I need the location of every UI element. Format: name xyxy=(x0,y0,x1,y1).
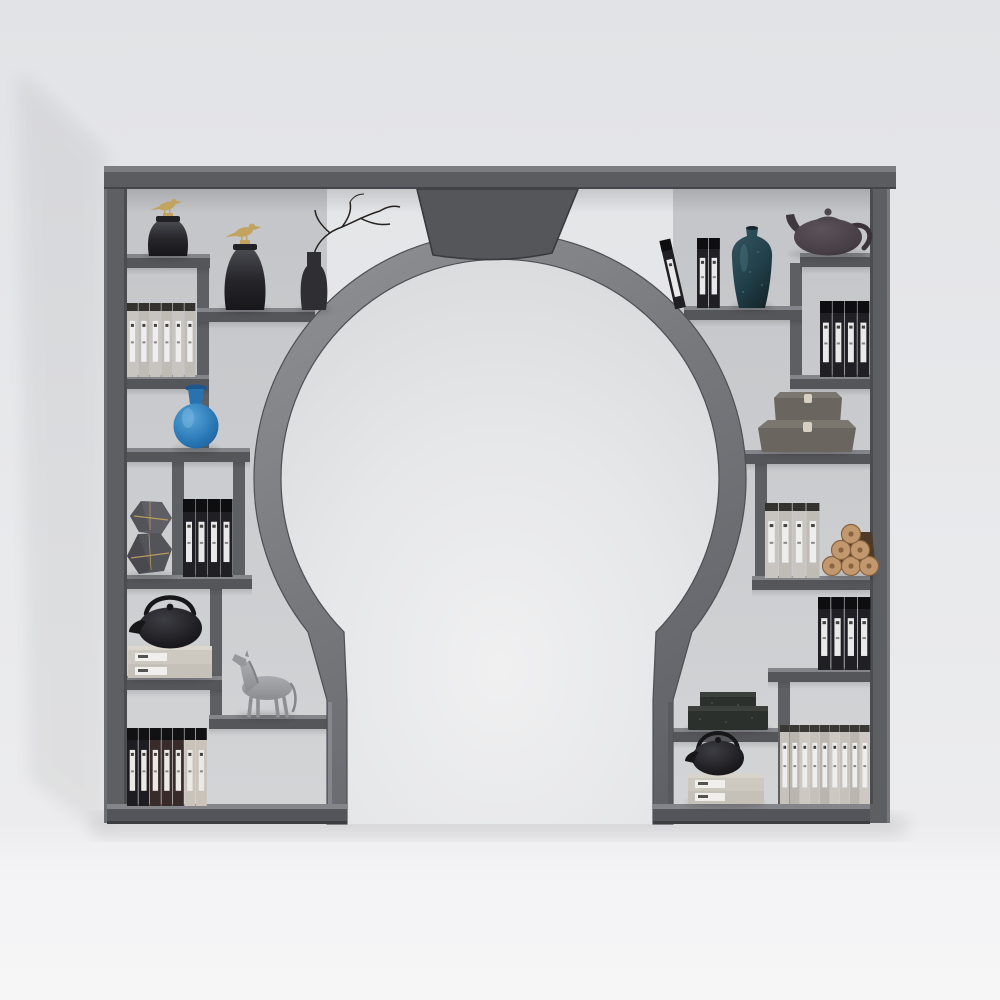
book-black-folios-top-right-upright-2 xyxy=(709,238,720,308)
book-label-mark-top xyxy=(177,753,180,756)
book-classic-books-right-mid-4 xyxy=(806,503,819,578)
book-black-folios-mid-left-1 xyxy=(183,499,195,577)
teapot-left-knob xyxy=(167,604,174,611)
shadow-hex xyxy=(125,573,175,580)
stone-slab-stack xyxy=(688,692,768,730)
book-classic-books-bottom-right-9 xyxy=(860,725,870,804)
book-cap xyxy=(139,303,150,311)
book-classic-books-right-mid-3 xyxy=(793,503,806,578)
book-mixed-books-bottom-left-3 xyxy=(150,728,161,806)
book-black-folios-right-lower-4 xyxy=(858,597,871,670)
book-cap xyxy=(196,728,207,740)
shelf-j-front xyxy=(790,379,870,389)
book-label-mark-mid xyxy=(177,770,180,772)
left-wall-edge-light xyxy=(104,186,107,823)
book-label-mark-mid xyxy=(142,770,145,772)
book-label-mark-top xyxy=(836,621,840,624)
book-label-mark-mid xyxy=(849,637,853,639)
base-right-shadowline xyxy=(653,821,870,824)
book-black-folios-right-upper-2 xyxy=(833,301,845,377)
book-cap xyxy=(779,503,792,511)
book-classic-books-bottom-right-8 xyxy=(850,725,860,804)
book-black-folios-right-upper-3 xyxy=(845,301,857,377)
book-label-mark-top xyxy=(797,524,801,527)
book-cap xyxy=(833,301,845,313)
book-label-mark-top xyxy=(701,261,704,264)
base-left-shadowline xyxy=(107,821,347,824)
stack-left-mark1 xyxy=(138,655,148,658)
shelf-l-shadow xyxy=(752,590,870,597)
log3-core xyxy=(866,563,871,568)
stack-left-mark2 xyxy=(138,669,148,672)
right-foot-shade xyxy=(668,702,672,810)
book-label-mark-mid xyxy=(863,765,866,767)
book-cap xyxy=(820,725,830,732)
book-label-mark-mid xyxy=(701,276,704,278)
book-label-mark-mid xyxy=(783,542,787,544)
book-label-mark-top xyxy=(225,525,228,528)
book-label-mark-mid xyxy=(843,765,846,767)
stack-right-mark1 xyxy=(698,782,708,785)
slab-dot4 xyxy=(725,721,727,723)
book-cap xyxy=(845,301,857,313)
book-label-mark-top xyxy=(770,524,774,527)
bird-large-leg1 xyxy=(241,236,243,241)
book-label-mark-mid xyxy=(188,341,191,343)
book-label-mark-mid xyxy=(824,342,827,344)
shelf-d-shadow xyxy=(123,462,250,469)
bird-small-head xyxy=(171,199,177,205)
book-mixed-books-bottom-left-1 xyxy=(127,728,138,806)
book-cap xyxy=(697,238,708,249)
book-classic-books-bottom-right-6 xyxy=(830,725,840,804)
shelf-m xyxy=(768,668,870,689)
log5-core xyxy=(857,547,862,552)
book-label-mark-top xyxy=(131,753,134,756)
book-cap xyxy=(831,597,844,609)
book-cap xyxy=(127,728,138,740)
floor xyxy=(0,826,1000,1000)
left-wall-inner-shade xyxy=(124,189,127,804)
speckle1 xyxy=(757,251,759,253)
book-black-folios-mid-left-4 xyxy=(221,499,233,577)
book-label-mark-top xyxy=(849,326,852,329)
divider-left-2 xyxy=(172,452,184,579)
shelf-k-shadow xyxy=(744,464,870,471)
right-wall-inner-shade xyxy=(870,189,873,804)
book-label-mark-mid xyxy=(188,770,191,772)
book-label-mark-mid xyxy=(813,765,816,767)
book-classic-books-bottom-right-7 xyxy=(840,725,850,804)
book-label-mark-top xyxy=(154,324,157,327)
book-label-mark-top xyxy=(849,621,853,624)
book-cap xyxy=(162,303,173,311)
book-label-mark-top xyxy=(783,524,787,527)
book-label-mark-top xyxy=(824,326,827,329)
book-label-mark-top xyxy=(154,753,157,756)
book-label-mark-top xyxy=(165,324,168,327)
book-label-mark-mid xyxy=(803,765,806,767)
horse-leg3 xyxy=(276,699,278,716)
book-label xyxy=(796,521,803,563)
book-label-mark-mid xyxy=(131,341,134,343)
speckle4 xyxy=(742,291,744,293)
shelf-a-front xyxy=(123,258,210,268)
book-label-mark-top xyxy=(853,746,856,749)
moon-gate-shelf-render xyxy=(0,0,1000,1000)
jar-large-lid xyxy=(233,244,257,250)
book-label-mark-mid xyxy=(793,765,796,767)
book-mixed-books-bottom-left-6 xyxy=(185,728,196,806)
book-label-mark-mid xyxy=(212,542,215,544)
book-label-mark-top xyxy=(200,753,203,756)
book-label-mark-mid xyxy=(187,542,190,544)
book-classic-books-top-left-3 xyxy=(150,303,161,377)
book-label-mark-mid xyxy=(200,542,203,544)
shelf-b-shadow xyxy=(197,322,315,329)
stack-right-mark2 xyxy=(698,795,708,798)
shelf-g-shadow xyxy=(209,729,332,736)
blue-vase-highlight xyxy=(182,408,194,428)
base-right-top xyxy=(653,804,870,809)
book-cap xyxy=(818,597,831,609)
book-label-mark-top xyxy=(811,524,815,527)
book-label-mark-mid xyxy=(200,770,203,772)
book-label-mark-top xyxy=(187,525,190,528)
book-cap xyxy=(765,503,778,511)
shelf-unit xyxy=(104,166,896,824)
book-label-mark-mid xyxy=(823,637,827,639)
book-classic-books-top-left-6 xyxy=(185,303,196,377)
book-cap xyxy=(196,499,208,512)
book-cap xyxy=(208,499,220,512)
book-label-mark-mid xyxy=(154,770,157,772)
book-label-mark-mid xyxy=(853,765,856,767)
book-mixed-books-bottom-left-2 xyxy=(139,728,150,806)
shelf-d-front xyxy=(123,452,250,462)
book-label-mark-mid xyxy=(836,637,840,639)
wall-cast-shadow xyxy=(18,70,106,836)
base-right xyxy=(653,804,870,824)
log2-core xyxy=(848,563,853,568)
book-label-mark-top xyxy=(863,746,866,749)
log4-core xyxy=(838,547,843,552)
shelf-a-shadow xyxy=(123,268,210,275)
book-classic-books-top-left-2 xyxy=(139,303,150,377)
book-label-mark-top xyxy=(188,324,191,327)
book-cap xyxy=(840,725,850,732)
book-cap xyxy=(858,301,870,313)
book-label-mark-top xyxy=(793,746,796,749)
log1-core xyxy=(829,563,834,568)
book-label-mark-top xyxy=(142,324,145,327)
shelf-e-shadow xyxy=(123,589,252,596)
slab-dot2 xyxy=(737,704,739,706)
slab-dot1 xyxy=(711,702,713,704)
shelf-f-front xyxy=(123,680,222,690)
shelf-f-shadow xyxy=(123,690,222,697)
book-label-mark-top xyxy=(823,746,826,749)
book-label-mark-top xyxy=(142,753,145,756)
clay-teapot-knob xyxy=(824,208,831,215)
book-label-mark-mid xyxy=(833,765,836,767)
shelf-i-front xyxy=(800,257,870,267)
book-label-mark-mid xyxy=(823,765,826,767)
book-label-mark-mid xyxy=(797,542,801,544)
book-classic-books-right-mid-2 xyxy=(779,503,792,578)
book-label-mark-mid xyxy=(770,542,774,544)
book-cap xyxy=(173,728,184,740)
shelf-l-front xyxy=(752,580,870,590)
jar-small-body xyxy=(148,221,188,256)
book-stack-left xyxy=(128,646,212,678)
book-label-mark-top xyxy=(823,621,827,624)
book-cap xyxy=(173,303,184,311)
top-cap-underline xyxy=(104,187,896,189)
book-label-mark-mid xyxy=(862,637,866,639)
box-top-clasp xyxy=(804,394,812,403)
book-cap xyxy=(845,597,858,609)
book-classic-books-bottom-right-2 xyxy=(790,725,800,804)
book-label-mark-mid xyxy=(177,341,180,343)
gate-keystone xyxy=(417,189,578,260)
clay-teapot-body xyxy=(794,219,862,256)
shelf-e-front xyxy=(123,579,252,589)
book-mixed-books-bottom-left-4 xyxy=(162,728,173,806)
left-foot-highlight xyxy=(328,702,332,810)
shelf-i-shadow xyxy=(800,267,870,274)
book-label-mark-mid xyxy=(811,542,815,544)
divider-left-3 xyxy=(233,452,245,579)
bird-small-leg1 xyxy=(164,209,165,214)
bird-small-leg2 xyxy=(169,209,170,214)
book-cap xyxy=(162,728,173,740)
book-label-mark-mid xyxy=(837,342,840,344)
book-cap xyxy=(139,728,150,740)
book-mixed-books-bottom-left-5 xyxy=(173,728,184,806)
book-black-folios-right-upper-4 xyxy=(858,301,870,377)
book-black-folios-mid-left-2 xyxy=(196,499,208,577)
book-cap xyxy=(150,303,161,311)
book-label-mark-top xyxy=(862,326,865,329)
book-classic-books-bottom-right-3 xyxy=(800,725,810,804)
book-label-mark-mid xyxy=(142,341,145,343)
book-label-mark-mid xyxy=(849,342,852,344)
book-label xyxy=(782,521,789,563)
book-label-mark-top xyxy=(783,746,786,749)
book-cap xyxy=(780,725,790,732)
book-classic-books-right-mid-1 xyxy=(765,503,778,578)
book-label xyxy=(810,521,817,563)
book-mixed-books-bottom-left-7 xyxy=(196,728,207,806)
shelf-h-front xyxy=(684,310,802,320)
shelf-h-shadow xyxy=(684,320,802,327)
teapot-right-body xyxy=(692,741,744,776)
bird-large-head xyxy=(249,224,256,231)
shelf-m-shadow xyxy=(768,682,870,689)
book-label-mark-top xyxy=(188,753,191,756)
top-cap-front xyxy=(104,172,896,189)
book-label-mark-top xyxy=(833,746,836,749)
slab-dot3 xyxy=(699,718,701,720)
shelf-b-front xyxy=(197,312,315,322)
book-cap xyxy=(127,303,138,311)
book-classic-books-top-left-5 xyxy=(173,303,184,377)
shelf-k-front xyxy=(744,454,870,464)
book-cap xyxy=(793,503,806,511)
book-black-folios-top-right-upright-1 xyxy=(697,238,708,308)
book-label-mark-top xyxy=(177,324,180,327)
shelf-g-front xyxy=(209,719,332,729)
book-black-folios-right-lower-1 xyxy=(818,597,831,670)
slab-dot5 xyxy=(751,717,753,719)
book-label-mark-top xyxy=(165,753,168,756)
book-cap xyxy=(820,301,832,313)
render-canvas xyxy=(0,0,1000,1000)
book-classic-books-top-left-4 xyxy=(162,303,173,377)
book-label-mark-top xyxy=(837,326,840,329)
log6-core xyxy=(848,531,853,536)
book-cap xyxy=(150,728,161,740)
book-label-mark-top xyxy=(813,746,816,749)
book-cap xyxy=(185,303,196,311)
book-cap xyxy=(806,503,819,511)
book-label xyxy=(768,521,775,563)
book-label-mark-mid xyxy=(165,770,168,772)
top-cap-face xyxy=(104,166,896,173)
book-black-folios-right-upper-1 xyxy=(820,301,832,377)
speckle3 xyxy=(761,284,763,286)
book-label-mark-top xyxy=(713,261,716,264)
book-cap xyxy=(858,597,871,609)
right-wall-edge-light xyxy=(887,186,890,823)
book-cap xyxy=(860,725,870,732)
book-label-mark-top xyxy=(131,324,134,327)
book-label-mark-top xyxy=(843,746,846,749)
speckle2 xyxy=(749,271,751,273)
book-label-mark-mid xyxy=(131,770,134,772)
blue-vase-body xyxy=(174,404,219,449)
book-classic-books-bottom-right-4 xyxy=(810,725,820,804)
book-cap xyxy=(830,725,840,732)
book-cap xyxy=(185,728,196,740)
book-label-mark-top xyxy=(803,746,806,749)
book-stack-right xyxy=(688,774,764,804)
jar-small-lid xyxy=(156,216,180,222)
book-classic-books-bottom-right-5 xyxy=(820,725,830,804)
book-black-folios-right-lower-3 xyxy=(845,597,858,670)
book-cap xyxy=(850,725,860,732)
base-left xyxy=(107,804,347,824)
book-cap xyxy=(709,238,720,249)
teal-vase-mouth xyxy=(746,226,758,230)
horse-leg1 xyxy=(249,698,251,716)
teal-vase-highlight xyxy=(740,244,748,272)
book-cap xyxy=(800,725,810,732)
book-cap xyxy=(790,725,800,732)
book-label-mark-top xyxy=(200,525,203,528)
slab-bottom xyxy=(688,711,768,730)
shelf-m-front xyxy=(768,672,870,682)
book-label-mark-mid xyxy=(165,341,168,343)
teapot-right-knob xyxy=(715,737,721,743)
book-label-mark-top xyxy=(212,525,215,528)
teapot-left-body xyxy=(138,608,202,649)
book-cap xyxy=(183,499,195,512)
book-classic-books-top-left-1 xyxy=(127,303,138,377)
box-bottom-clasp xyxy=(803,422,812,432)
book-label-mark-mid xyxy=(783,765,786,767)
book-label-mark-mid xyxy=(862,342,865,344)
book-label-mark-mid xyxy=(154,341,157,343)
bird-large-leg2 xyxy=(246,236,248,241)
book-cap xyxy=(810,725,820,732)
book-label-mark-mid xyxy=(225,542,228,544)
book-cap xyxy=(221,499,233,512)
blue-vase-neck xyxy=(188,389,204,404)
book-black-folios-right-lower-2 xyxy=(831,597,844,670)
book-classic-books-bottom-right-1 xyxy=(780,725,790,804)
book-label-mark-top xyxy=(862,621,866,624)
book-black-folios-mid-left-3 xyxy=(208,499,220,577)
book-label-mark-mid xyxy=(713,276,716,278)
